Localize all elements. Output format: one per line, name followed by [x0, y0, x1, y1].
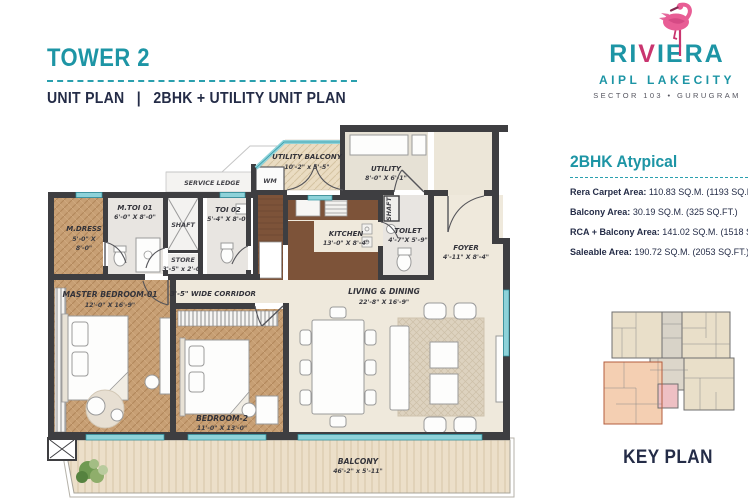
flamingo-icon [586, 2, 748, 42]
room-label-foyer: FOYER [453, 244, 478, 252]
spec-label: Rera Carpet Area: [570, 187, 646, 198]
room-dims-kitchen: 13'-0" X 8'-4" [323, 240, 369, 247]
subtitle-plan-type: 2BHK + UTILITY UNIT PLAN [153, 90, 346, 108]
room-label-utility-balcony: UTILITY BALCONY [272, 153, 343, 161]
specs-heading: 2BHK Atypical [570, 152, 734, 172]
room-label-m-dress: M.DRESS [66, 225, 101, 233]
room-label-service-ledge: SERVICE LEDGE [184, 179, 240, 187]
room-label-shaft: SHAFT [171, 221, 195, 229]
spec-label: Balcony Area: [570, 207, 630, 218]
room-dims-master-bedroom: 12'-0" X 16'-9" [85, 302, 135, 309]
room-label-shaft-small: SHAFT [385, 197, 393, 221]
spec-value: 190.72 SQ.M. (2053 SQ.FT.) [634, 247, 748, 258]
room-label-toilet: TOILET [394, 227, 423, 235]
room-label-toi-02: TOI 02 [215, 206, 241, 214]
room-dims-m-dress-1: 5'-0" X [72, 236, 96, 243]
subtitle-separator: | [137, 90, 141, 108]
spec-value: 110.83 SQ.M. (1193 SQ.FT.) [649, 187, 748, 198]
spec-label: Saleable Area: [570, 247, 632, 258]
room-label-balcony: BALCONY [338, 457, 380, 466]
room-label-utility: UTILITY [371, 165, 402, 173]
spec-balcony-area: Balcony Area: 30.19 SQ.M. (325 SQ.FT.) [570, 207, 737, 218]
brand-project-name: AIPL LAKECITY [586, 73, 748, 87]
room-label-master-bedroom: MASTER BEDROOM-01 [62, 290, 157, 299]
room-dims-foyer: 4'-11" X 8'-4" [443, 254, 489, 261]
spec-value: 30.19 SQ.M. (325 SQ.FT.) [633, 207, 738, 218]
room-dims-utility: 8'-0" X 6'-1" [365, 175, 407, 182]
spec-label: RCA + Balcony Area: [570, 227, 660, 238]
room-dims-m-dress-2: 8'-0" [76, 245, 92, 252]
key-plan-drawing [596, 308, 740, 436]
room-dims-store: 3'-5" x 2'-0" [163, 266, 204, 273]
area-specs-panel: 2BHK Atypical Rera Carpet Area: 110.83 S… [570, 152, 748, 267]
specs-divider [570, 177, 748, 178]
spec-rca-balcony-area: RCA + Balcony Area: 141.02 SQ.M. (1518 S… [570, 227, 737, 238]
page-title: TOWER 2 [47, 44, 337, 73]
spec-rera-carpet-area: Rera Carpet Area: 110.83 SQ.M. (1193 SQ.… [570, 187, 737, 198]
room-dims-balcony: 46'-2" x 5'-11" [333, 468, 383, 475]
subtitle-unit-plan: UNIT PLAN [47, 90, 124, 108]
room-label-wm: WM [263, 177, 277, 185]
brochure-page: MASTER BEDROOM-01 12'-0" X 16'-9" BEDROO… [0, 0, 748, 503]
spec-value: 141.02 SQ.M. (1518 SQ.FT.) [662, 227, 748, 238]
room-dims-toi-02: 5'-4" X 8'-0" [207, 216, 249, 223]
room-label-store: STORE [171, 256, 195, 264]
room-dims-living-dining: 22'-8" X 16'-9" [359, 299, 409, 306]
room-label-kitchen: KITCHEN [329, 230, 364, 238]
room-label-bedroom-2: BEDROOM-2 [196, 414, 248, 423]
brand-location: SECTOR 103 • GURUGRAM [586, 91, 748, 100]
room-dims-m-toi-01: 6'-0" X 8'-0" [114, 214, 156, 221]
room-dims-toilet: 4'-7"X 5'-9" [388, 237, 428, 244]
page-subtitle: UNIT PLAN | 2BHK + UTILITY UNIT PLAN [47, 90, 337, 108]
key-plan: KEY PLAN [596, 308, 740, 469]
room-dims-utility-balcony: 10'-2" x 5'-5" [284, 164, 329, 171]
room-dims-bedroom-2: 11'-0" X 13'-0" [197, 425, 247, 432]
room-label-m-toi-01: M.TOI 01 [117, 204, 152, 212]
brand-logo: RIVIERA AIPL LAKECITY SECTOR 103 • GURUG… [586, 2, 748, 100]
spec-saleable-area: Saleable Area: 190.72 SQ.M. (2053 SQ.FT.… [570, 247, 737, 258]
room-label-corridor: 3'-5" WIDE CORRIDOR [170, 290, 256, 298]
room-label-living-dining: LIVING & DINING [348, 287, 420, 296]
key-plan-label: KEY PLAN [603, 447, 733, 469]
title-divider [47, 80, 357, 82]
header: TOWER 2 UNIT PLAN | 2BHK + UTILITY UNIT … [47, 44, 377, 108]
